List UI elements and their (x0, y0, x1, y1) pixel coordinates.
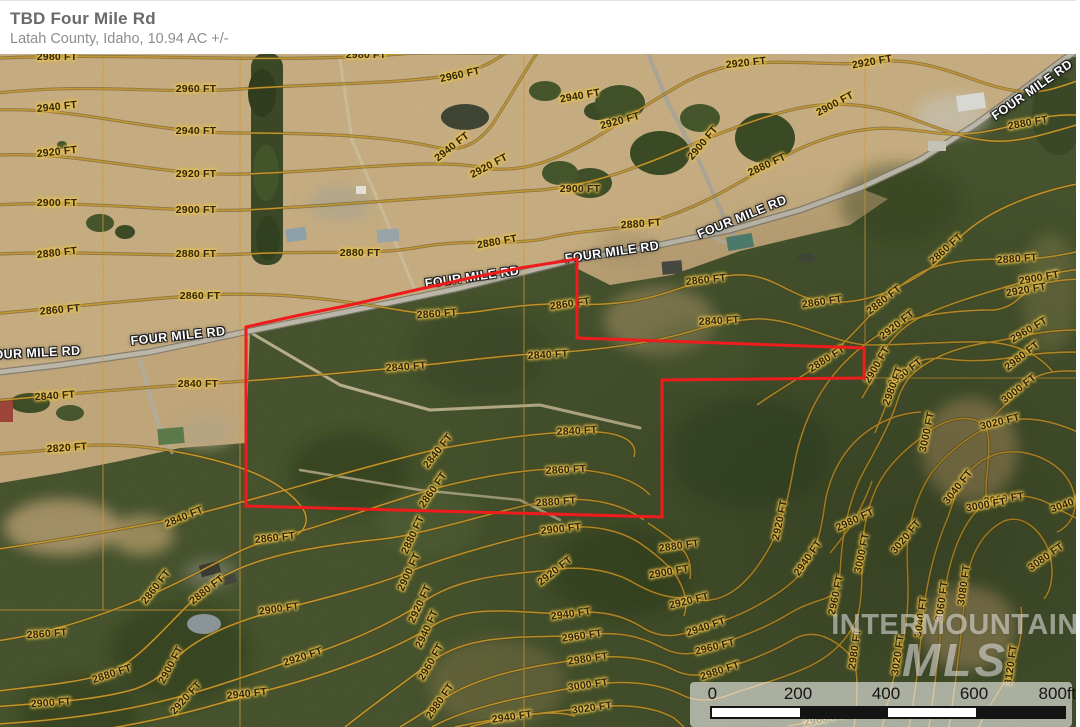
map-canvas: 2980 FT2980 FT2960 FT2960 FT2940 FT2940 … (0, 53, 1080, 727)
listing-title: TBD Four Mile Rd (10, 9, 156, 29)
mls-listing-map-page: { "header": { "title": "TBD Four Mile Rd… (0, 0, 1080, 727)
property-boundary (246, 259, 864, 517)
property-boundary-layer (0, 53, 1080, 727)
listing-header: TBD Four Mile Rd Latah County, Idaho, 10… (0, 0, 1080, 54)
listing-subtitle: Latah County, Idaho, 10.94 AC +/- (10, 31, 229, 47)
right-edge-margin (1076, 0, 1080, 727)
